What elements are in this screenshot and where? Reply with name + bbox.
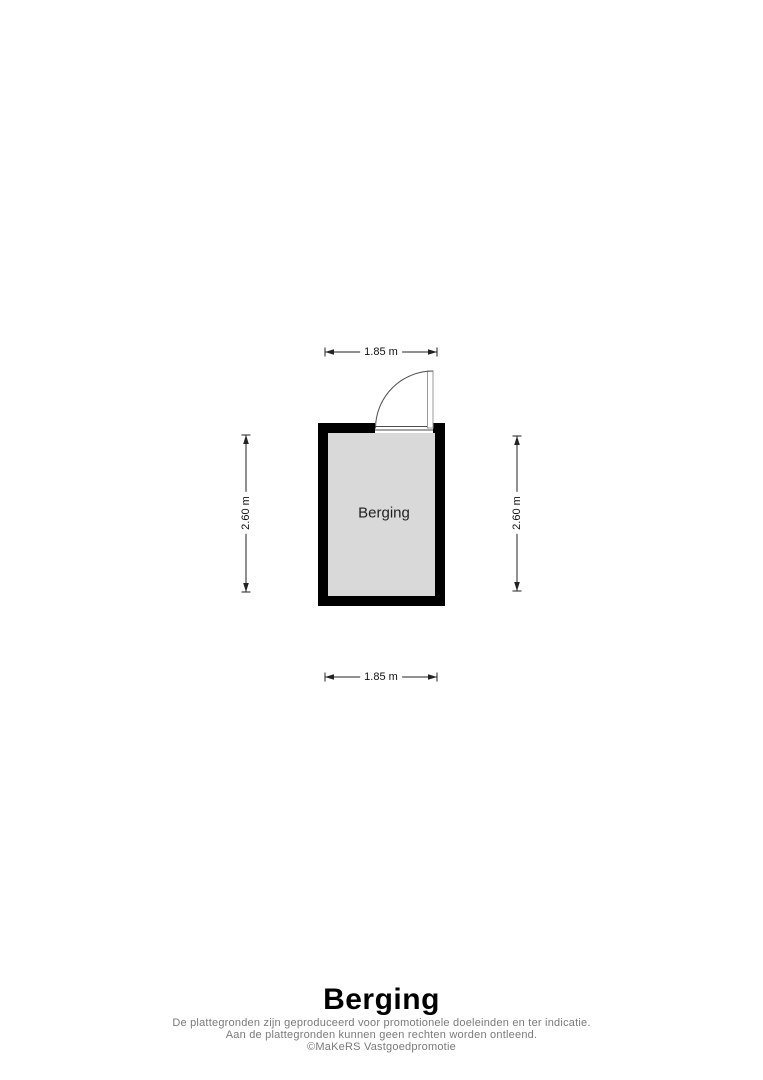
dimension-arrow — [514, 436, 520, 445]
plan-title: Berging — [0, 983, 763, 1017]
dimension-arrow — [243, 583, 249, 592]
dimension-label-left: 2.60 m — [240, 492, 252, 534]
door-leaf — [428, 371, 434, 428]
dimension-arrow — [428, 674, 437, 680]
floorplan-drawing — [0, 0, 763, 1080]
dimension-arrow — [325, 674, 334, 680]
room-label: Berging — [358, 505, 410, 522]
dimension-label-right: 2.60 m — [511, 492, 523, 534]
disclaimer-line-1: De plattegronden zijn geproduceerd voor … — [0, 1017, 763, 1029]
dimension-label-bottom: 1.85 m — [360, 671, 402, 683]
dimension-arrow — [514, 582, 520, 591]
disclaimer-line-3: ©MaKeRS Vastgoedpromotie — [0, 1041, 763, 1053]
dimension-label-top: 1.85 m — [360, 346, 402, 358]
dimension-arrow — [243, 435, 249, 444]
floorplan-page: 1.85 m 1.85 m 2.60 m 2.60 m Berging Berg… — [0, 0, 763, 1080]
dimension-arrow — [428, 349, 437, 355]
door-opening — [375, 423, 433, 433]
disclaimer-line-2: Aan de plattegronden kunnen geen rechten… — [0, 1029, 763, 1041]
dimension-arrow — [325, 349, 334, 355]
disclaimer: De plattegronden zijn geproduceerd voor … — [0, 1017, 763, 1053]
door-swing-arc — [376, 371, 434, 429]
